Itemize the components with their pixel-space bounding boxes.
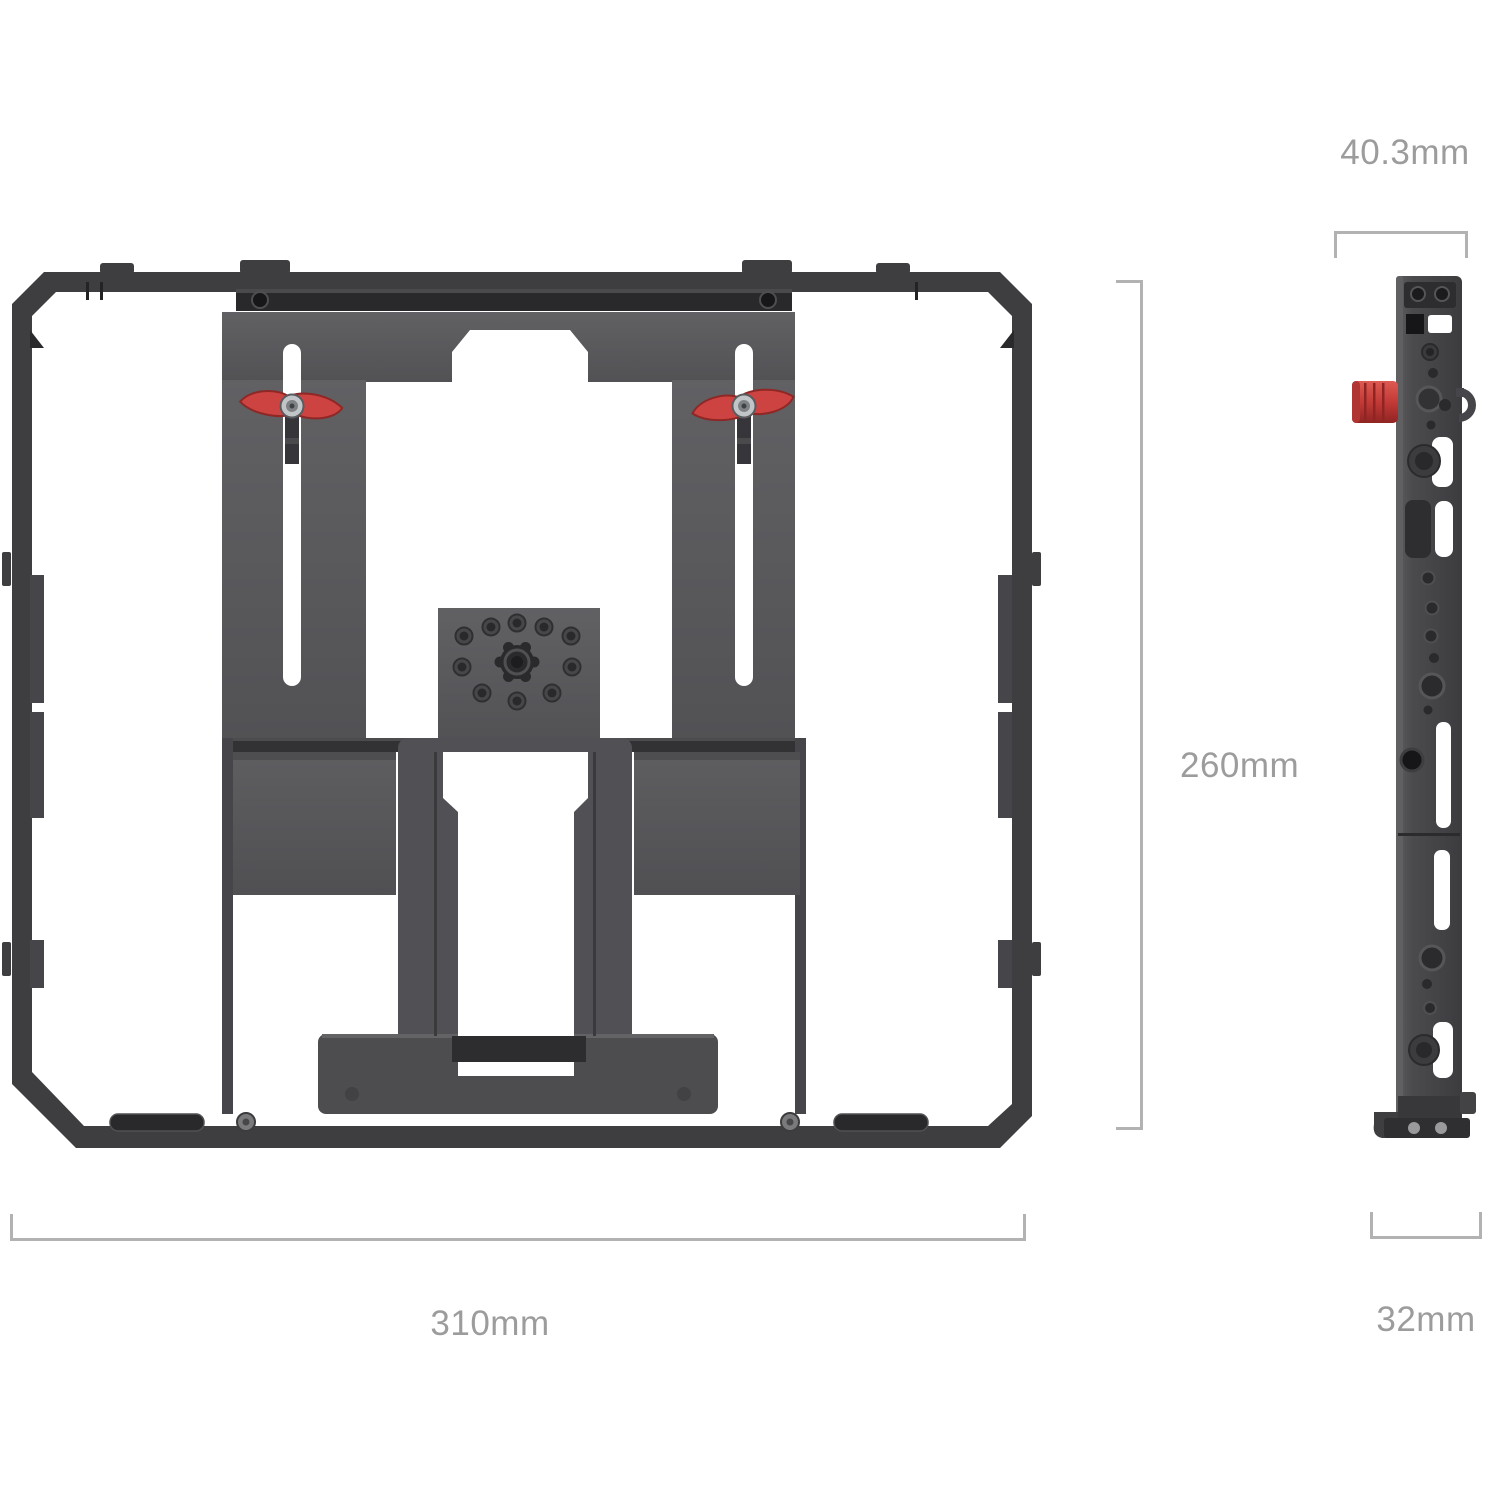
dimension-front-height [1116, 280, 1143, 1130]
bracket-window-cutout [443, 752, 588, 1076]
front-view-cage [2, 260, 1041, 1148]
bottom-slot-left [110, 1114, 204, 1131]
dimension-front-width [10, 1214, 1026, 1241]
dimension-side-bottom-width [1370, 1212, 1482, 1239]
dimension-side-top-width [1334, 231, 1468, 258]
lower-right-panel [634, 752, 800, 895]
bottom-slot-right [834, 1114, 928, 1131]
side-rail-foot [1374, 1092, 1476, 1138]
side-top-width-label: 40.3mm [1310, 134, 1500, 173]
cage-top-rail [236, 289, 792, 311]
front-height-label: 260mm [1180, 747, 1299, 786]
red-thumbscrew-knob [1352, 381, 1398, 423]
camera-notch-cutout [452, 330, 588, 382]
lower-left-panel [233, 752, 396, 895]
side-view-rail [1352, 276, 1476, 1138]
product-dimension-diagram: 260mm 310mm 40.3mm 32mm [0, 0, 1500, 1500]
side-bottom-width-label: 32mm [1331, 1301, 1500, 1340]
front-width-label: 310mm [390, 1305, 590, 1344]
lower-left-member [222, 738, 233, 1114]
